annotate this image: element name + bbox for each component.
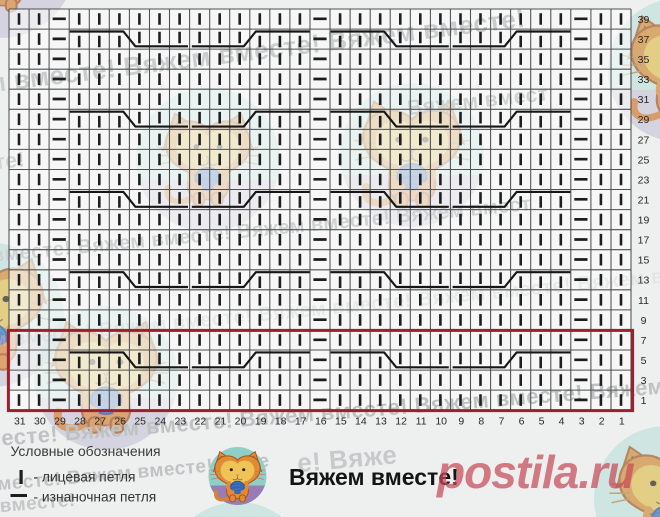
svg-text:23: 23 (638, 174, 650, 186)
svg-text:14: 14 (355, 416, 367, 428)
svg-text:37: 37 (638, 34, 650, 46)
svg-text:22: 22 (195, 416, 207, 428)
svg-text:20: 20 (235, 416, 247, 428)
svg-text:12: 12 (395, 416, 407, 428)
svg-text:31: 31 (14, 416, 26, 428)
svg-text:28: 28 (74, 416, 86, 428)
svg-text:9: 9 (458, 416, 464, 428)
svg-text:8: 8 (478, 416, 484, 428)
svg-text:11: 11 (416, 416, 427, 428)
svg-text:1: 1 (619, 416, 625, 428)
svg-text:29: 29 (638, 114, 650, 126)
svg-text:postila.ru: postila.ru (435, 446, 635, 498)
svg-text:- лицевая петля: - лицевая петля (34, 470, 136, 485)
svg-text:5: 5 (641, 355, 647, 367)
svg-text:25: 25 (134, 416, 146, 428)
svg-text:4: 4 (559, 416, 565, 428)
svg-text:13: 13 (638, 275, 650, 287)
svg-text:15: 15 (638, 255, 650, 267)
svg-text:1: 1 (641, 395, 647, 407)
svg-text:9: 9 (641, 315, 647, 327)
svg-text:33: 33 (638, 74, 650, 86)
svg-text:30: 30 (34, 416, 46, 428)
svg-text:13: 13 (375, 416, 387, 428)
svg-text:25: 25 (638, 154, 650, 166)
svg-text:26: 26 (114, 416, 126, 428)
svg-text:7: 7 (498, 416, 504, 428)
svg-text:7: 7 (641, 335, 647, 347)
svg-text:- изнаночная петля: - изнаночная петля (34, 490, 157, 505)
svg-text:27: 27 (94, 416, 106, 428)
svg-text:39: 39 (638, 14, 650, 26)
svg-text:35: 35 (638, 54, 650, 66)
svg-text:Вяжем вместе!: Вяжем вместе! (289, 464, 459, 490)
svg-text:19: 19 (255, 416, 267, 428)
svg-text:23: 23 (175, 416, 187, 428)
svg-text:21: 21 (638, 195, 650, 207)
svg-text:Условные обозначения: Условные обозначения (11, 443, 161, 459)
svg-text:3: 3 (579, 416, 585, 428)
svg-text:27: 27 (638, 134, 650, 146)
svg-text:17: 17 (295, 416, 307, 428)
svg-text:19: 19 (638, 215, 650, 227)
svg-text:21: 21 (215, 416, 227, 428)
svg-text:11: 11 (638, 295, 649, 307)
svg-text:6: 6 (519, 416, 525, 428)
svg-text:18: 18 (275, 416, 287, 428)
svg-text:31: 31 (638, 94, 650, 106)
svg-text:3: 3 (641, 375, 647, 387)
svg-text:29: 29 (54, 416, 66, 428)
svg-text:2: 2 (599, 416, 605, 428)
svg-text:5: 5 (539, 416, 545, 428)
svg-text:24: 24 (154, 416, 166, 428)
svg-text:17: 17 (638, 235, 650, 247)
svg-text:10: 10 (435, 416, 447, 428)
svg-text:16: 16 (315, 416, 327, 428)
svg-text:15: 15 (335, 416, 347, 428)
